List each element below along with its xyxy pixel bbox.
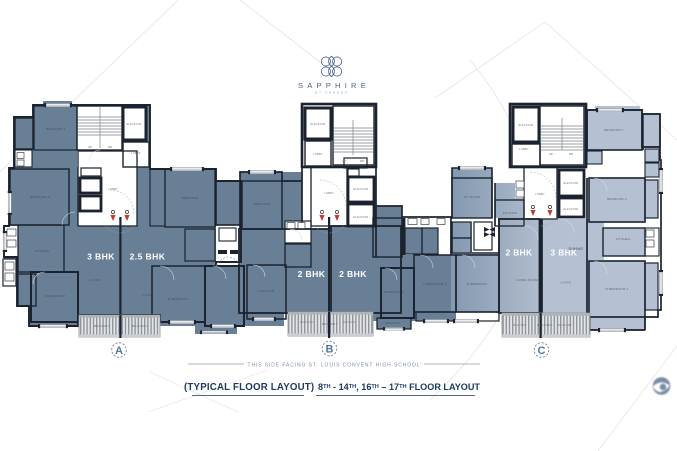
svg-text:SIT ROOM: SIT ROOM [464,195,481,199]
svg-text:BALCONY: BALCONY [513,323,527,327]
svg-text:H.BEDROOM 2: H.BEDROOM 2 [424,282,447,286]
svg-text:BALCONY: BALCONY [322,322,337,326]
svg-text:LOBBY: LOBBY [324,191,334,195]
svg-text:DN: DN [569,152,573,156]
svg-text:ELEVATOR: ELEVATOR [126,122,141,126]
svg-text:ELEVATOR: ELEVATOR [353,215,368,219]
svg-text:BEDROOM 2: BEDROOM 2 [607,197,627,201]
svg-text:BALCONY: BALCONY [558,323,572,327]
svg-text:BY KEREDO: BY KEREDO [315,91,349,95]
svg-text:BEDROOM: BEDROOM [182,196,199,200]
svg-text:2 BHK: 2 BHK [506,248,533,258]
svg-text:UP: UP [342,159,346,163]
svg-text:M.BEDROOM: M.BEDROOM [45,294,66,298]
svg-text:2.5 BHK: 2.5 BHK [130,252,166,262]
svg-text:LOBBY: LOBBY [535,192,545,196]
svg-text:M.BEDROOM: M.BEDROOM [168,297,189,301]
svg-text:'THIS SIDE FACING ST. LOUIS CO: 'THIS SIDE FACING ST. LOUIS CONVENT HIGH… [246,363,423,369]
svg-text:2 BHK: 2 BHK [339,269,367,279]
svg-text:LIVING: LIVING [143,293,154,297]
svg-text:BALCONY: BALCONY [300,320,314,324]
svg-text:LIVING: LIVING [561,281,572,285]
svg-text:DN: DN [108,145,112,149]
svg-text:KITCHEN: KITCHEN [503,211,517,215]
svg-text:LOBBY: LOBBY [519,147,529,151]
svg-text:M.BEDROOM 1: M.BEDROOM 1 [605,287,628,291]
svg-text:LOBBY: LOBBY [313,152,323,156]
svg-text:ELEVATOR: ELEVATOR [563,207,578,211]
svg-text:BEDROOM 1: BEDROOM 1 [604,128,624,132]
svg-text:LOBBY: LOBBY [131,151,141,155]
svg-text:DN: DN [360,159,364,163]
svg-text:M.BEDROOM: M.BEDROOM [467,282,488,286]
svg-text:3 BHK: 3 BHK [87,252,115,262]
svg-text:BEDROOM: BEDROOM [254,202,271,206]
svg-text:BALCONY: BALCONY [132,324,147,328]
svg-text:A: A [115,345,123,357]
svg-text:LIVING ROOM: LIVING ROOM [516,278,538,282]
svg-text:BALCONY: BALCONY [385,321,400,325]
svg-text:BEDROOM 3: BEDROOM 3 [384,290,404,294]
svg-text:ELEVATOR: ELEVATOR [563,181,578,185]
svg-text:LIVING RM: LIVING RM [258,289,275,293]
svg-text:ELEVATOR: ELEVATOR [310,122,325,126]
svg-text:ELEVATOR: ELEVATOR [518,123,533,127]
svg-text:BEDROOM 1: BEDROOM 1 [46,127,66,131]
svg-text:BALCONY: BALCONY [343,320,357,324]
svg-text:UP: UP [88,145,92,149]
svg-text:(TYPICAL FLOOR LAYOUT): (TYPICAL FLOOR LAYOUT) [184,382,314,393]
svg-text:BALCONY: BALCONY [94,324,109,328]
svg-text:KITCHEN: KITCHEN [616,237,630,241]
svg-text:C: C [538,345,546,357]
svg-text:KITCHEN: KITCHEN [35,249,49,253]
svg-text:UP: UP [549,152,553,156]
svg-text:BALCONY: BALCONY [537,323,552,327]
svg-text:B: B [326,343,334,355]
svg-text:LIVING: LIVING [90,278,101,282]
svg-text:2 BHK: 2 BHK [298,269,326,279]
svg-text:DINING: DINING [569,247,584,251]
svg-text:SAPPHIRE: SAPPHIRE [298,81,370,90]
svg-text:LOBBY: LOBBY [108,187,118,191]
svg-text:BEDROOM 2: BEDROOM 2 [30,195,50,199]
svg-text:ELEVATOR: ELEVATOR [353,187,368,191]
